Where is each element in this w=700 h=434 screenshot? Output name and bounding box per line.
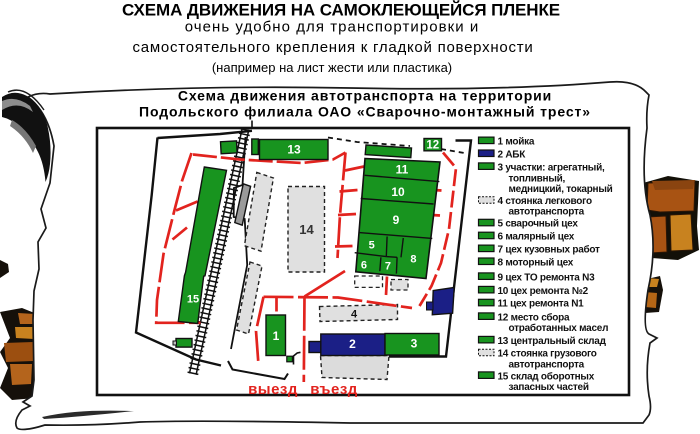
svg-text:СХЕМА ДВИЖЕНИЯ НА САМОКЛЕЮЩЕЙС: СХЕМА ДВИЖЕНИЯ НА САМОКЛЕЮЩЕЙСЯ ПЛЕНКЕ [122,1,560,20]
svg-text:3: 3 [411,337,418,351]
svg-text:9 цех ТО ремонта N3: 9 цех ТО ремонта N3 [498,272,596,283]
svg-text:8: 8 [410,253,416,265]
svg-text:автотранспорта: автотранспорта [509,207,585,218]
svg-text:отработанных масел: отработанных масел [509,322,609,334]
svg-text:15: 15 [187,294,199,306]
svg-text:12 место сбора: 12 место сбора [498,311,571,323]
svg-text:11 цех ремонта N1: 11 цех ремонта N1 [498,299,585,310]
svg-text:9: 9 [393,213,400,227]
svg-text:15 склад оборотных: 15 склад оборотных [498,370,595,382]
svg-text:2: 2 [349,337,356,351]
svg-text:8 моторный цех: 8 моторный цех [498,257,574,268]
svg-text:13: 13 [287,143,301,157]
svg-text:самостоятельного крепления к г: самостоятельного крепления к гладкой пов… [133,39,534,56]
svg-text:4 стоянка легкового: 4 стоянка легкового [498,196,592,207]
svg-text:въезд: въезд [310,381,358,398]
svg-text:10 цех ремонта №2: 10 цех ремонта №2 [498,286,589,297]
svg-text:1 мойка: 1 мойка [498,137,535,148]
svg-text:топливный,: топливный, [509,174,566,185]
svg-text:очень удобно для транспортиров: очень удобно для транспортировки и [185,19,480,36]
svg-text:Схема движения автотранспорта: Схема движения автотранспорта на террито… [178,88,552,104]
svg-text:Подольского филиала ОАО «Сваро: Подольского филиала ОАО «Сварочно-монтаж… [139,104,591,120]
svg-text:3 участки: агрегатный,: 3 участки: агрегатный, [498,162,605,173]
svg-text:автотранспорта: автотранспорта [509,359,585,370]
svg-text:6: 6 [361,259,367,271]
svg-text:5 сварочный цех: 5 сварочный цех [498,219,579,230]
svg-text:2 АБК: 2 АБК [498,149,527,160]
svg-text:7 цех кузовных работ: 7 цех кузовных работ [498,244,601,256]
svg-text:14: 14 [299,222,314,237]
svg-text:5: 5 [369,240,375,252]
svg-text:(например на лист жести или пл: (например на лист жести или пластика) [212,60,452,75]
svg-text:7: 7 [385,260,391,272]
svg-text:13 центральный склад: 13 центральный склад [498,336,607,347]
svg-text:14 стоянка грузового: 14 стоянка грузового [498,349,597,360]
svg-text:выезд: выезд [248,381,298,398]
svg-text:12: 12 [426,140,439,152]
svg-text:4: 4 [351,309,358,321]
svg-text:запасных частей: запасных частей [509,382,589,393]
svg-text:1: 1 [273,329,280,343]
svg-text:медницкий, токарный: медницкий, токарный [509,184,613,195]
svg-text:10: 10 [391,185,405,199]
svg-text:11: 11 [396,163,409,177]
svg-text:6 малярный цех: 6 малярный цех [498,232,575,243]
